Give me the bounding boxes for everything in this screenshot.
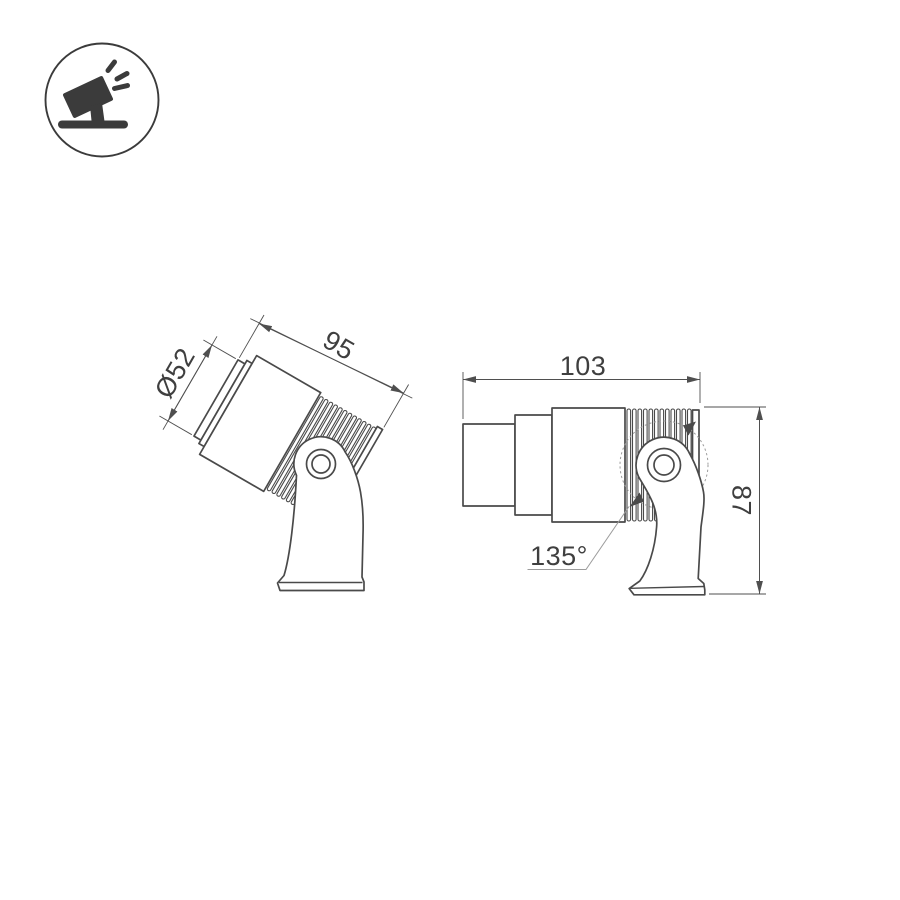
logo-lamp-base: [58, 121, 128, 129]
length-label: 95: [318, 325, 360, 367]
logo-lamp-head: [62, 75, 113, 118]
extension-line: [239, 315, 264, 358]
logo-light-ray-icon: [115, 86, 128, 89]
width-label: 103: [560, 351, 607, 381]
height-label: 87: [727, 485, 757, 516]
front-tip: [463, 424, 515, 506]
technical-drawing: Ø52 95: [0, 0, 900, 900]
right-view: 103 87 135°: [463, 351, 766, 595]
left-view: Ø52 95: [149, 315, 412, 591]
diameter-label: Ø52: [149, 343, 201, 404]
front-ring: [515, 415, 552, 515]
spotlight-logo-icon: [46, 44, 159, 157]
right-pivot-knob-inner: [654, 455, 674, 475]
main-body: [552, 408, 625, 522]
logo-light-ray-icon: [108, 62, 115, 71]
drawing-page: Ø52 95: [0, 0, 900, 900]
extension-line: [384, 385, 409, 428]
left-pivot-knob-inner: [312, 455, 330, 473]
extension-line: [159, 416, 191, 435]
extension-line: [203, 340, 235, 359]
dimension-height-87: 87: [704, 407, 766, 594]
tilt-angle-label: 135°: [530, 541, 588, 571]
logo-light-ray-icon: [117, 74, 127, 80]
heatsink-fin: [627, 409, 631, 521]
